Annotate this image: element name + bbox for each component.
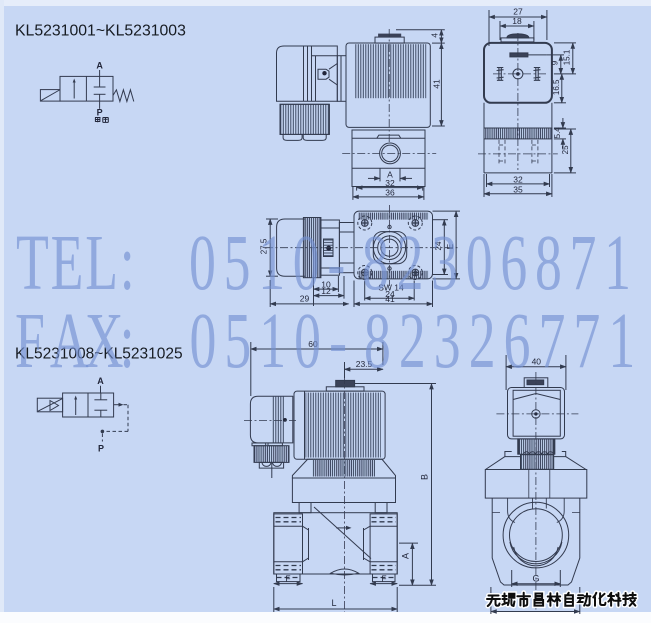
svg-text:4: 4	[430, 33, 440, 38]
svg-text:32: 32	[513, 175, 523, 185]
svg-text:41: 41	[432, 79, 442, 89]
svg-text:35: 35	[513, 184, 523, 194]
svg-text:16.5: 16.5	[552, 79, 561, 95]
svg-text:G: G	[532, 573, 539, 583]
svg-text:KL5231001~KL5231003: KL5231001~KL5231003	[15, 23, 186, 40]
svg-text:25: 25	[561, 145, 570, 154]
svg-text:9: 9	[551, 60, 560, 65]
svg-text:B: B	[420, 474, 430, 480]
svg-text:P: P	[98, 444, 104, 454]
svg-text:A: A	[96, 61, 103, 71]
svg-text:5.4: 5.4	[553, 127, 562, 139]
svg-text:L: L	[331, 598, 336, 608]
svg-text:36: 36	[385, 188, 395, 198]
svg-text:P: P	[97, 108, 103, 118]
svg-text:F: F	[285, 574, 290, 584]
svg-text:18: 18	[512, 16, 522, 26]
svg-text:A: A	[401, 553, 411, 559]
svg-text:15.1: 15.1	[563, 49, 572, 65]
svg-text:F: F	[381, 574, 386, 584]
